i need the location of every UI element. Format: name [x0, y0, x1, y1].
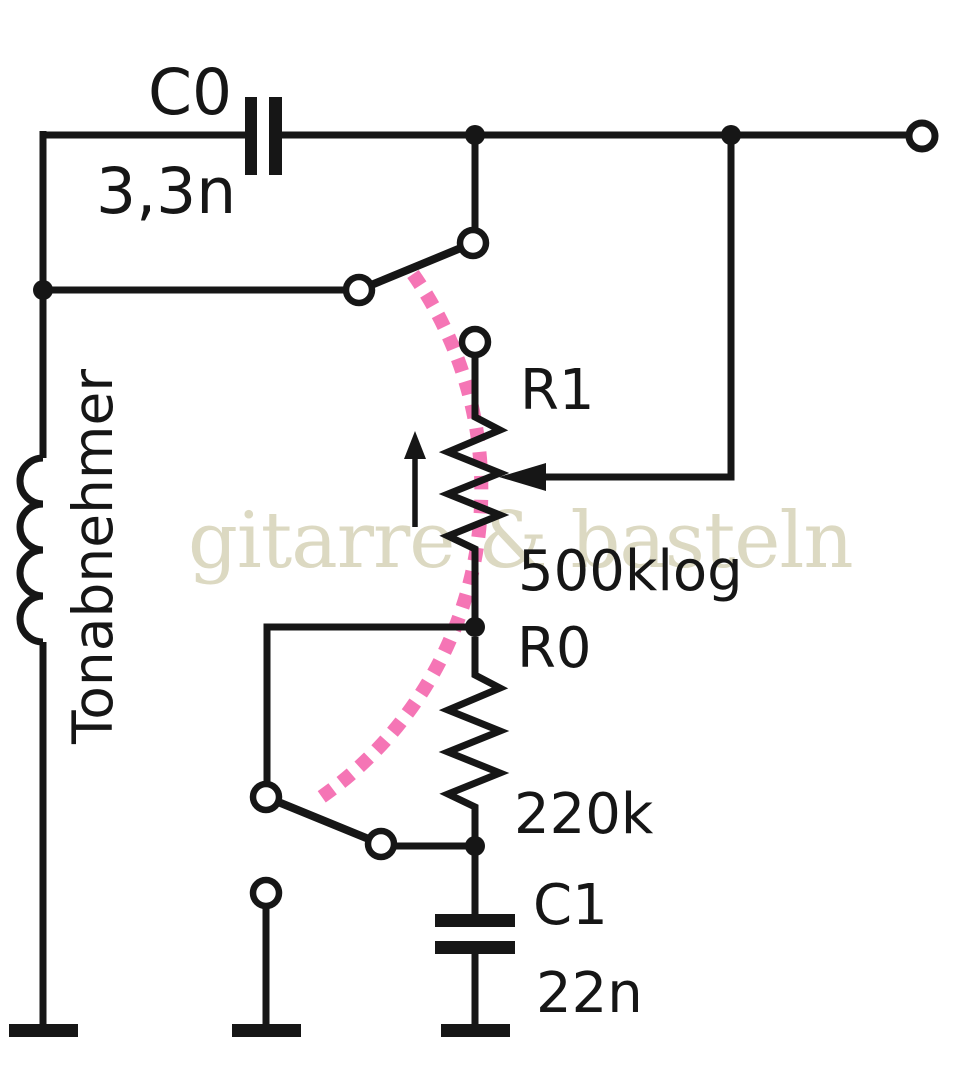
ground-symbols	[9, 1024, 510, 1037]
component-value-c1: 22n	[536, 961, 643, 1026]
bottom-switch-pivot	[253, 784, 279, 810]
junction-dot	[465, 617, 485, 637]
bottom-switch-contact	[368, 831, 394, 857]
c1-plate-bottom	[435, 941, 515, 954]
resistor-r0-symbol	[448, 637, 500, 846]
wire-rail-to-wiper	[546, 135, 731, 477]
junction-dot	[465, 836, 485, 856]
c0-plate-left	[245, 97, 257, 175]
junction-dot	[465, 125, 485, 145]
capacitor-c0-symbol	[245, 97, 282, 175]
c1-plate-top	[435, 914, 515, 927]
schematic-canvas: gitarre & basteln	[0, 0, 960, 1080]
c0-plate-right	[269, 97, 282, 175]
ground-symbol-middle	[232, 1024, 301, 1037]
r1-wiper-arrow	[499, 463, 546, 491]
r1-top-contact	[462, 329, 488, 355]
top-switch-pivot	[346, 277, 372, 303]
inductor-pickup-symbol	[20, 458, 43, 642]
component-label-c1: C1	[533, 873, 608, 938]
r1-resistor-body	[448, 355, 500, 627]
arrow-head	[404, 431, 426, 459]
ground-symbol-left	[9, 1024, 78, 1037]
component-value-c0: 3,3n	[96, 155, 236, 228]
schematic-page: gitarre & basteln	[0, 0, 960, 1080]
component-value-r1: 500klog	[518, 539, 743, 604]
component-label-r1: R1	[520, 358, 595, 423]
junction-dot	[721, 125, 741, 145]
component-label-c0: C0	[148, 56, 232, 129]
component-label-r0: R0	[517, 616, 592, 681]
pickup-label: Tonabnehmer	[61, 369, 125, 745]
junction-dot	[33, 280, 53, 300]
top-switch-contact	[460, 230, 486, 256]
output-terminal	[909, 123, 935, 149]
ground-symbol-right	[441, 1024, 510, 1037]
component-value-r0: 220k	[514, 782, 654, 847]
bottom-ground-contact	[253, 880, 279, 906]
capacitor-c1-symbol	[435, 914, 515, 954]
switch-bottom-lever	[266, 797, 381, 844]
